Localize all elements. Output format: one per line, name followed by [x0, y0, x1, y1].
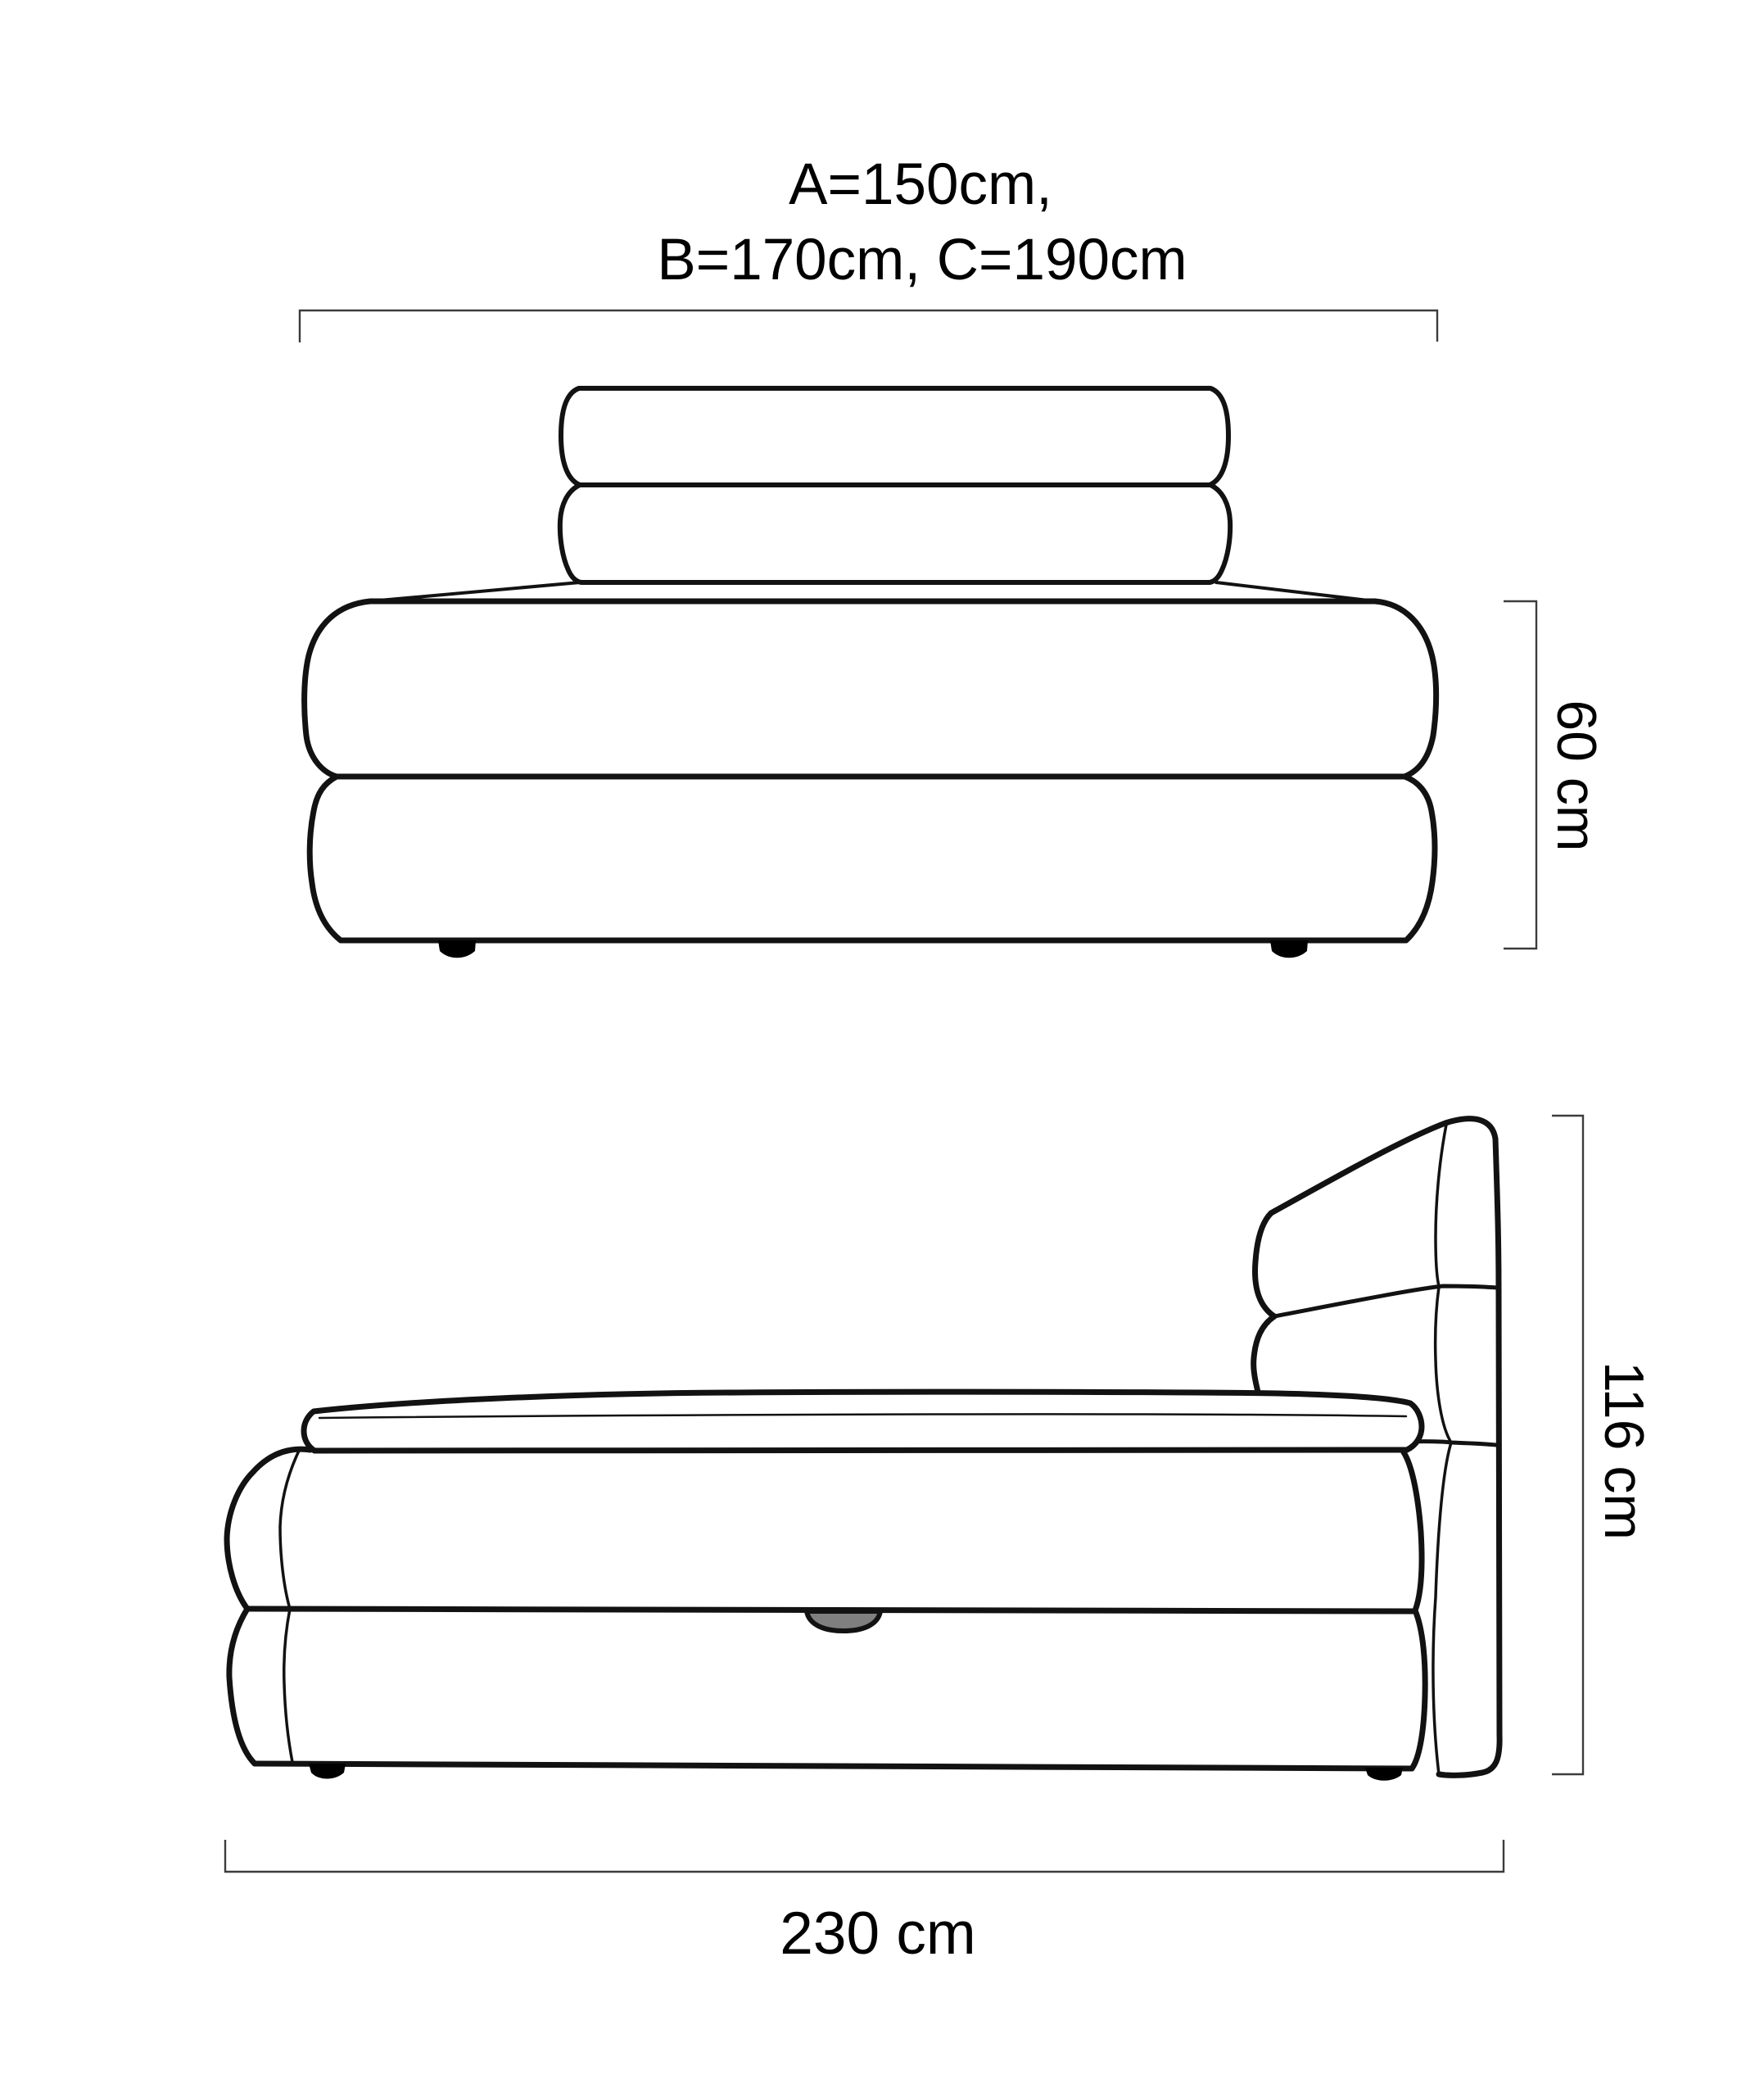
svg-text:116 cm: 116 cm: [1593, 1361, 1655, 1540]
svg-text:60 cm: 60 cm: [1545, 700, 1608, 851]
svg-text:A=150cm,: A=150cm,: [789, 152, 1052, 217]
svg-text:230 cm: 230 cm: [780, 1900, 975, 1967]
svg-text:B=170cm, C=190cm: B=170cm, C=190cm: [657, 228, 1187, 292]
